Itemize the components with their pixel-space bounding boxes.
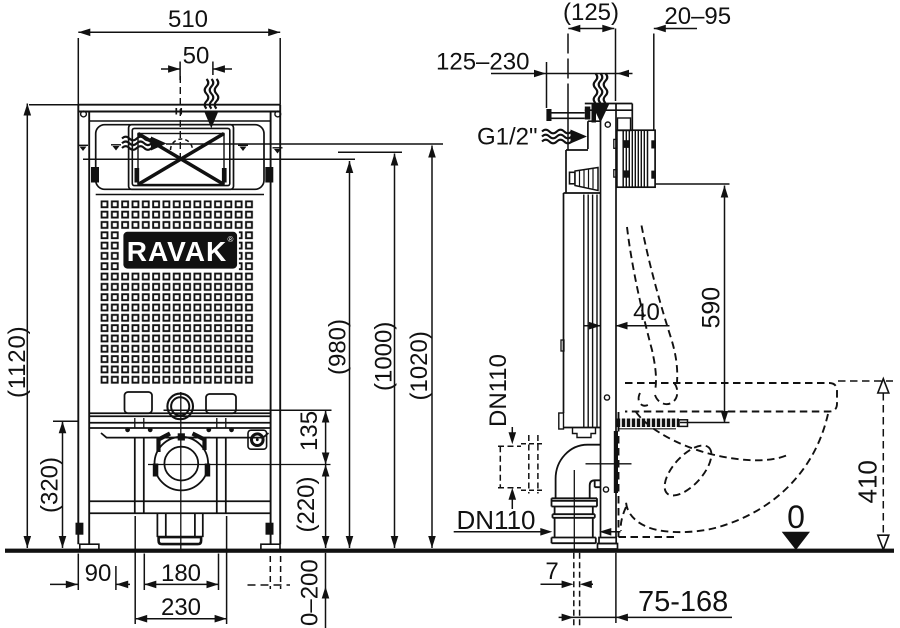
svg-text:(320): (320) bbox=[37, 457, 64, 513]
svg-text:410: 410 bbox=[853, 460, 883, 503]
svg-text:(220): (220) bbox=[293, 476, 320, 532]
svg-text:®: ® bbox=[228, 235, 234, 244]
svg-text:230: 230 bbox=[161, 594, 201, 621]
svg-text:180: 180 bbox=[161, 560, 201, 587]
svg-text:135: 135 bbox=[296, 411, 323, 451]
svg-text:7: 7 bbox=[545, 558, 558, 585]
svg-text:RAVAK: RAVAK bbox=[127, 236, 227, 267]
svg-text:510: 510 bbox=[168, 6, 208, 33]
svg-text:125–230: 125–230 bbox=[436, 49, 529, 76]
svg-text:(1020): (1020) bbox=[406, 331, 433, 400]
svg-text:90: 90 bbox=[85, 560, 112, 587]
svg-text:75-168: 75-168 bbox=[638, 586, 728, 618]
svg-text:(980): (980) bbox=[325, 319, 352, 375]
svg-text:40: 40 bbox=[633, 299, 660, 326]
svg-text:DN110: DN110 bbox=[457, 505, 536, 535]
svg-text:20–95: 20–95 bbox=[664, 3, 731, 30]
svg-text:G1/2": G1/2" bbox=[477, 124, 538, 151]
svg-text:DN110: DN110 bbox=[485, 354, 512, 427]
svg-text:0: 0 bbox=[787, 499, 805, 535]
svg-text:50: 50 bbox=[183, 43, 210, 70]
svg-text:0–200: 0–200 bbox=[297, 559, 324, 626]
svg-text:590: 590 bbox=[698, 287, 726, 329]
svg-text:(1120): (1120) bbox=[4, 326, 31, 398]
svg-text:(125): (125) bbox=[563, 0, 619, 26]
svg-text:(1000): (1000) bbox=[371, 322, 398, 391]
